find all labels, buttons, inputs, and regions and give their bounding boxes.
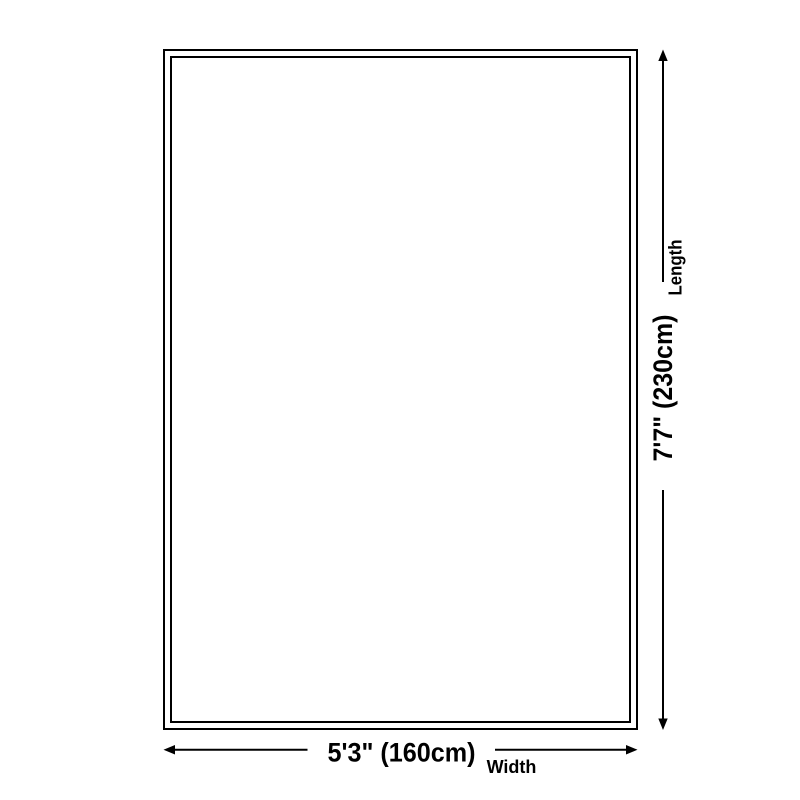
svg-text:5'3" (160cm): 5'3" (160cm) <box>328 738 476 768</box>
svg-text:7'7" (230cm): 7'7" (230cm) <box>648 315 678 462</box>
svg-text:Width: Width <box>487 757 537 777</box>
svg-text:Length: Length <box>666 240 686 296</box>
